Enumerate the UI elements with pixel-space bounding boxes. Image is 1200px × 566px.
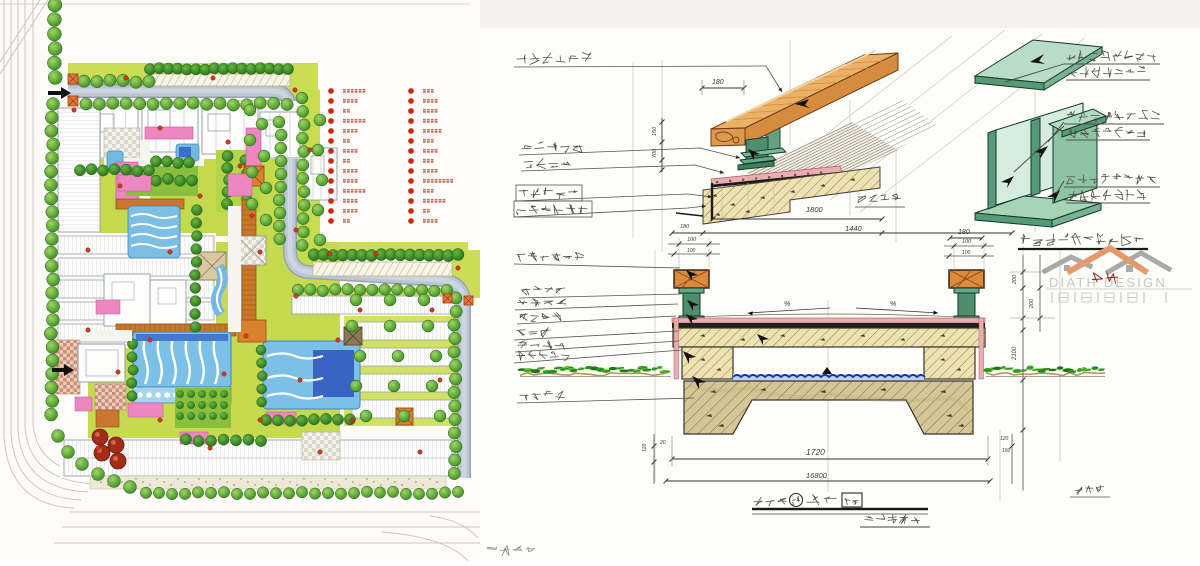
svg-text:150: 150	[652, 126, 658, 136]
svg-text:180: 180	[958, 229, 970, 236]
svg-text:1800: 1800	[806, 205, 824, 214]
svg-text:100: 100	[962, 239, 972, 245]
svg-text:100: 100	[687, 248, 696, 254]
svg-text:16800: 16800	[806, 471, 828, 480]
svg-text:2100: 2100	[1012, 346, 1018, 361]
svg-text:180: 180	[680, 224, 690, 230]
svg-text:200: 200	[1012, 274, 1018, 285]
svg-text:%: %	[890, 301, 896, 308]
svg-text:160: 160	[1002, 448, 1011, 454]
svg-text:100: 100	[687, 237, 697, 243]
svg-text:120: 120	[1000, 436, 1009, 442]
svg-text:%: %	[784, 301, 790, 308]
svg-text:1440: 1440	[845, 224, 863, 233]
svg-text:120: 120	[642, 443, 648, 452]
svg-text:180: 180	[712, 79, 724, 86]
svg-text:20: 20	[659, 440, 666, 446]
svg-text:100: 100	[962, 250, 971, 256]
svg-text:200: 200	[1029, 298, 1035, 309]
svg-text:1720: 1720	[806, 447, 825, 457]
